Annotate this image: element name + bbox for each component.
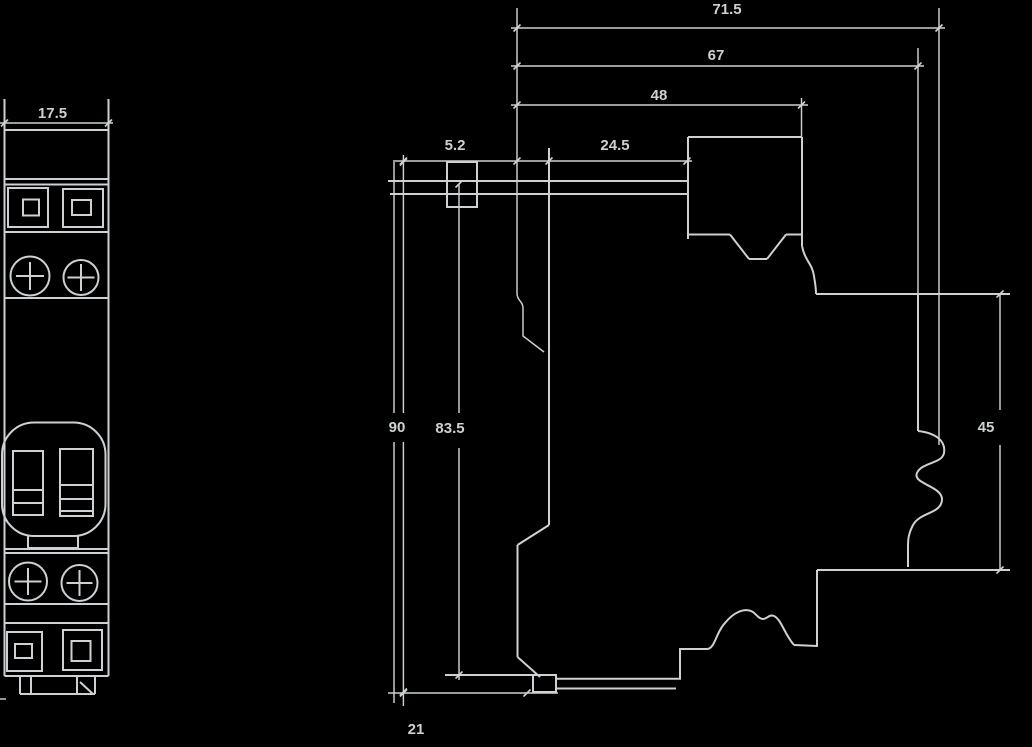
svg-text:21: 21 (408, 721, 425, 738)
svg-text:24.5: 24.5 (600, 137, 629, 154)
svg-text:83.5: 83.5 (435, 420, 464, 437)
svg-text:45: 45 (978, 419, 995, 436)
svg-text:67: 67 (708, 47, 725, 64)
svg-text:90: 90 (389, 419, 406, 436)
svg-text:17.5: 17.5 (38, 105, 67, 122)
svg-text:48: 48 (651, 87, 668, 104)
svg-text:71.5: 71.5 (712, 1, 741, 18)
svg-text:5.2: 5.2 (445, 137, 466, 154)
